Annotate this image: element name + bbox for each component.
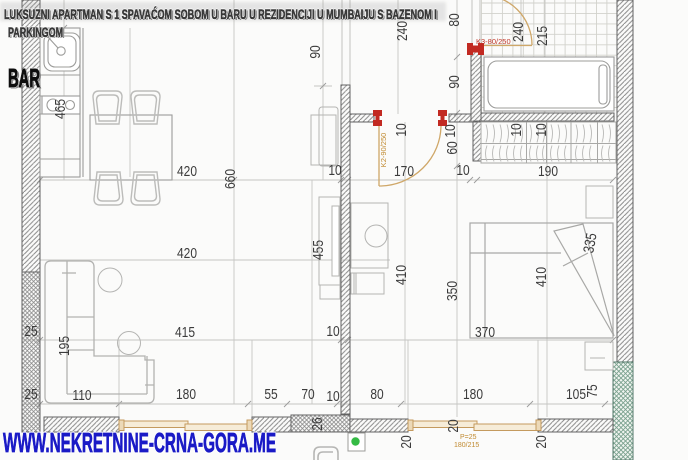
svg-text:60: 60 xyxy=(444,141,461,155)
svg-text:10: 10 xyxy=(508,123,525,137)
svg-text:75: 75 xyxy=(584,384,601,397)
svg-text:350: 350 xyxy=(444,281,461,301)
svg-text:90: 90 xyxy=(446,75,463,89)
svg-text:90: 90 xyxy=(307,45,324,59)
svg-text:215: 215 xyxy=(534,26,551,46)
svg-text:190: 190 xyxy=(538,163,558,180)
svg-text:370: 370 xyxy=(475,324,495,341)
svg-text:10: 10 xyxy=(393,123,410,137)
svg-text:20: 20 xyxy=(398,435,415,449)
svg-text:26: 26 xyxy=(309,417,326,430)
svg-text:10: 10 xyxy=(533,123,550,137)
svg-text:80: 80 xyxy=(370,386,384,403)
svg-text:25: 25 xyxy=(24,323,37,340)
svg-text:465: 465 xyxy=(52,99,69,119)
svg-text:110: 110 xyxy=(72,387,92,404)
svg-text:420: 420 xyxy=(177,163,197,180)
svg-text:180: 180 xyxy=(176,386,196,403)
svg-text:K2-90/250: K2-90/250 xyxy=(379,133,388,168)
svg-text:P=25: P=25 xyxy=(460,434,477,441)
svg-text:410: 410 xyxy=(393,265,410,285)
svg-text:K3-80/250: K3-80/250 xyxy=(476,37,511,46)
svg-text:180: 180 xyxy=(463,386,483,403)
svg-text:170: 170 xyxy=(394,163,414,180)
svg-text:25: 25 xyxy=(24,386,37,403)
svg-text:240: 240 xyxy=(394,21,411,41)
svg-text:660: 660 xyxy=(222,169,239,189)
svg-text:195: 195 xyxy=(56,336,73,356)
svg-text:455: 455 xyxy=(310,240,327,260)
svg-text:335: 335 xyxy=(580,232,600,255)
svg-text:10: 10 xyxy=(326,323,340,340)
svg-text:80: 80 xyxy=(446,13,463,27)
svg-text:180/215: 180/215 xyxy=(454,442,479,449)
svg-text:410: 410 xyxy=(533,267,550,287)
svg-text:10: 10 xyxy=(328,162,342,179)
svg-text:10: 10 xyxy=(456,162,470,179)
svg-text:20: 20 xyxy=(445,419,462,433)
svg-text:420: 420 xyxy=(177,245,197,262)
svg-text:240: 240 xyxy=(510,22,527,42)
svg-text:70: 70 xyxy=(301,386,315,403)
svg-text:10: 10 xyxy=(326,388,340,405)
svg-text:10: 10 xyxy=(442,124,459,138)
svg-text:415: 415 xyxy=(175,324,195,341)
svg-text:55: 55 xyxy=(264,386,277,403)
svg-text:20: 20 xyxy=(533,435,550,449)
